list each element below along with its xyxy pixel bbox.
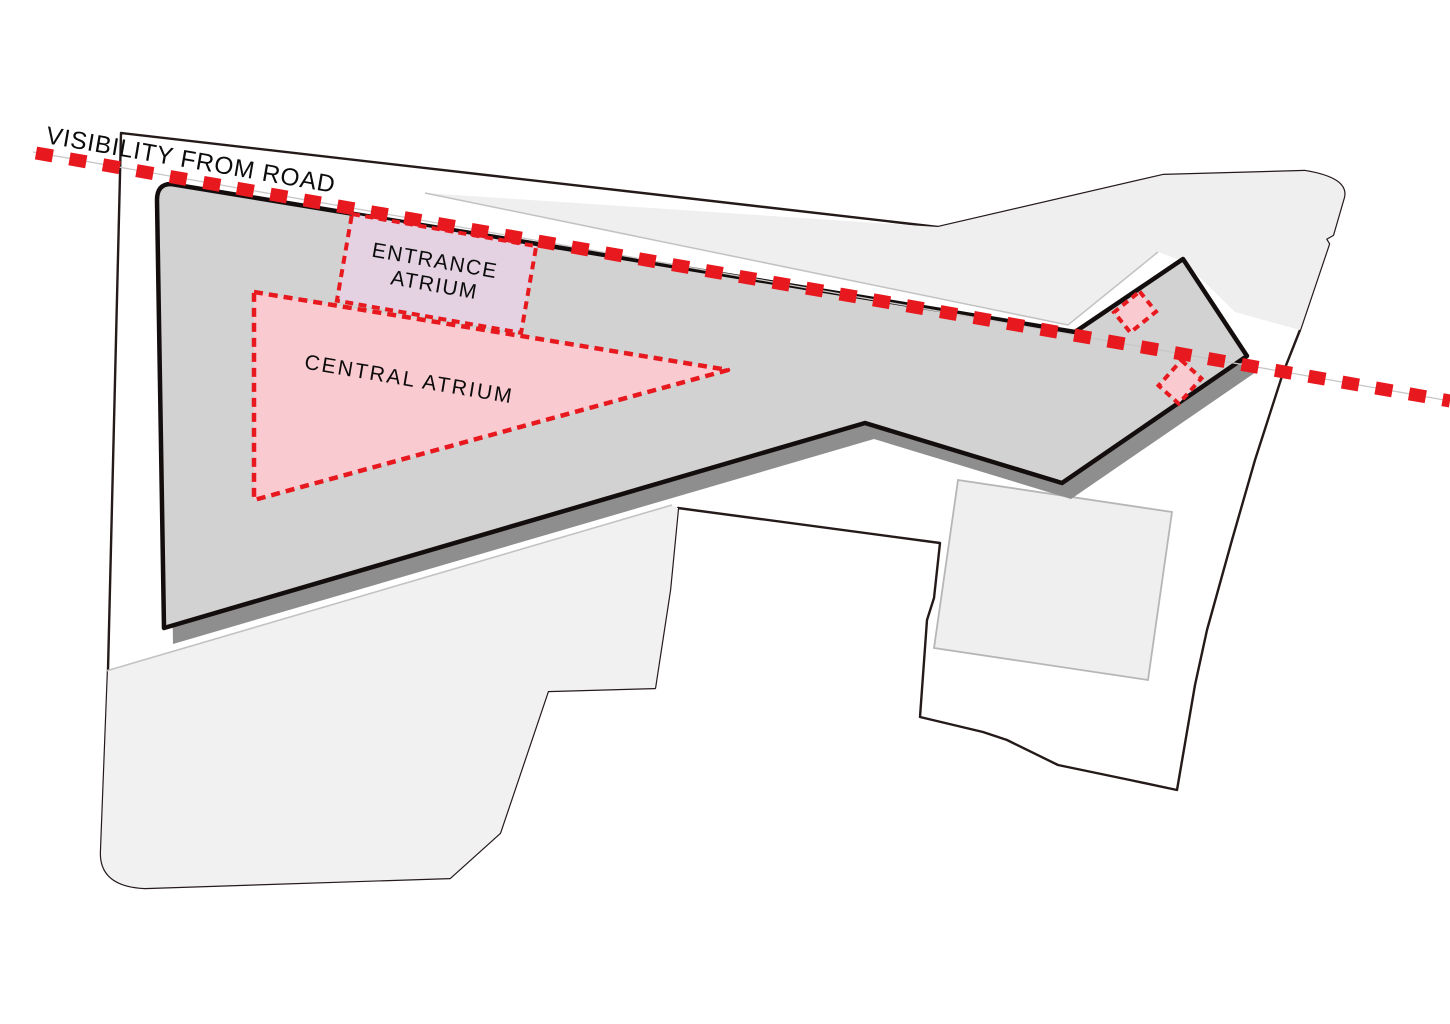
site-plan-diagram: VISIBILITY FROM ROAD ENTRANCE ATRIUM CEN… bbox=[0, 0, 1450, 1024]
neighbor-parcel-square bbox=[934, 480, 1172, 680]
site-plan-canvas: VISIBILITY FROM ROAD ENTRANCE ATRIUM CEN… bbox=[0, 0, 1450, 1024]
